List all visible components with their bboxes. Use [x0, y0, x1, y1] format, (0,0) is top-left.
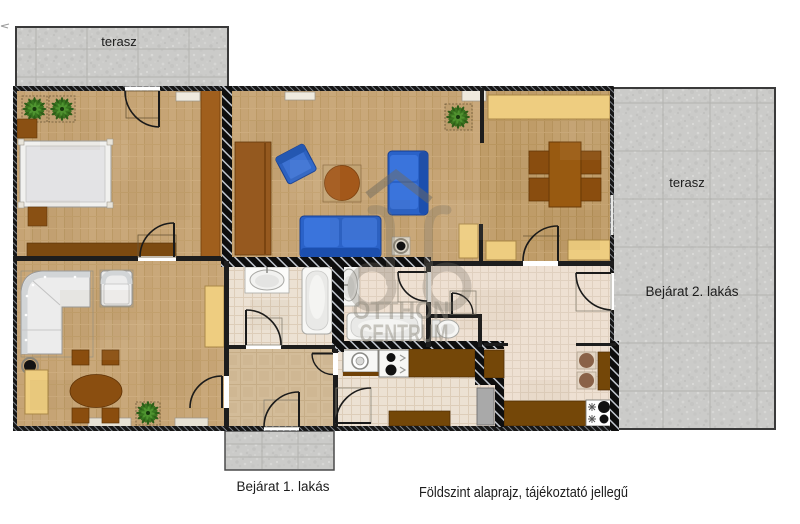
svg-text:terasz: terasz — [669, 175, 704, 190]
svg-text:CENTRUM: CENTRUM — [360, 320, 449, 348]
svg-text:terasz: terasz — [101, 34, 136, 49]
svg-text:Földszint alaprajz, tájékoztat: Földszint alaprajz, tájékoztató jellegű — [419, 484, 628, 501]
svg-text:Bejárat 1. lakás: Bejárat 1. lakás — [236, 479, 329, 494]
svg-text:Bejárat 2. lakás: Bejárat 2. lakás — [645, 284, 738, 299]
